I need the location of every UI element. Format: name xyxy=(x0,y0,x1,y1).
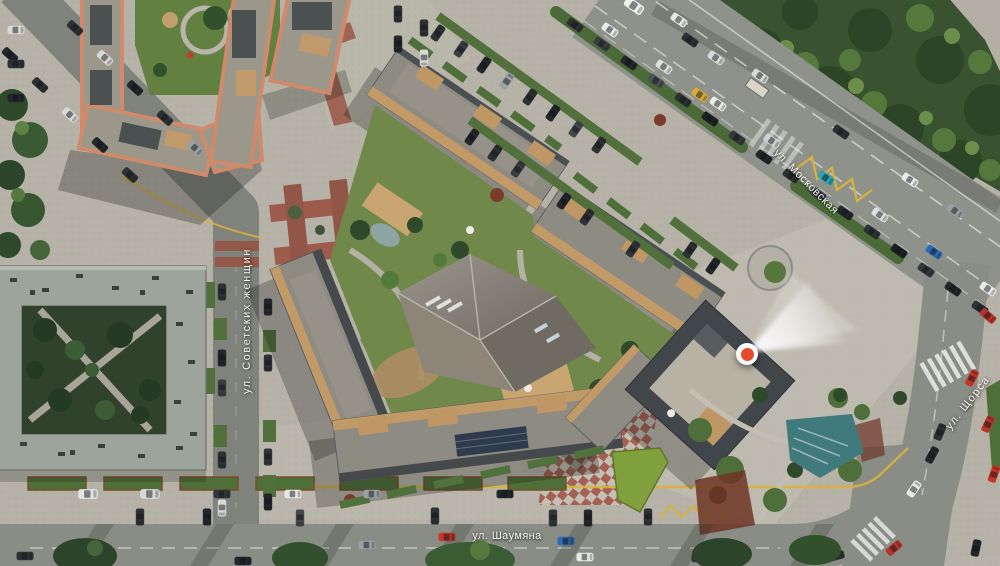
map-canvas: ул. Советских женщин ул. Шаумяна ул. Мос… xyxy=(0,0,1000,566)
red-crosswalk xyxy=(215,241,259,251)
building-left-block xyxy=(0,266,206,470)
location-marker-pin[interactable] xyxy=(736,343,758,365)
aerial-render xyxy=(0,0,1000,566)
location-marker-dot xyxy=(741,348,754,361)
